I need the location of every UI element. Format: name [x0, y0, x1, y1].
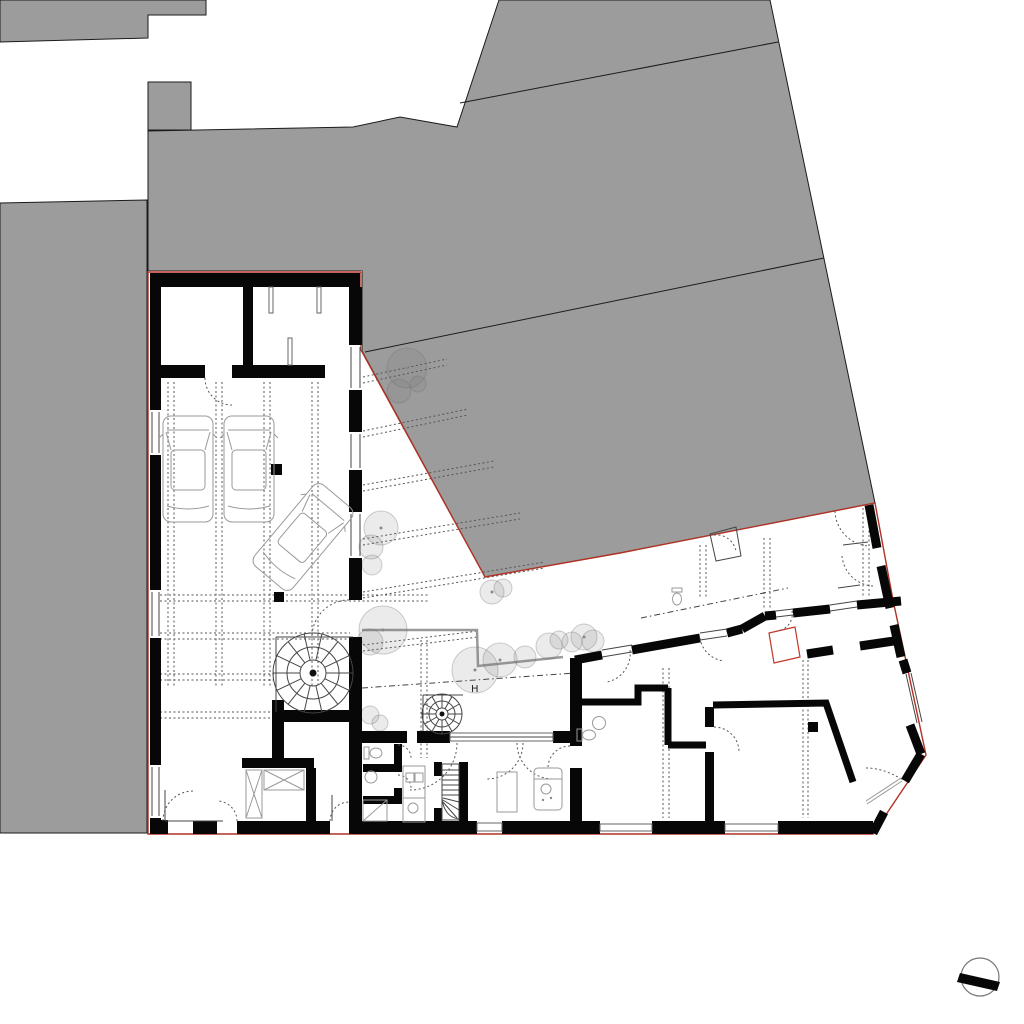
duct-stub: [269, 287, 273, 313]
plant-dot: [550, 797, 552, 799]
wall-segment: [570, 658, 582, 746]
wall-segment: [459, 762, 468, 822]
wall-segment: [903, 660, 907, 673]
wall-segment: [150, 287, 161, 410]
tree-canopy: [514, 646, 536, 668]
tree-canopy: [582, 630, 604, 652]
tree-trunk-dot: [380, 527, 383, 530]
neighbor-block-a: [0, 0, 206, 42]
wall-segment: [243, 287, 253, 365]
wall-segment: [349, 821, 362, 834]
wall-segment: [232, 365, 325, 378]
wall-segment: [237, 821, 330, 834]
wall-segment: [705, 707, 714, 727]
neighbor-block-b: [148, 82, 191, 130]
tree-trunk-dot: [382, 629, 385, 632]
wall-segment: [575, 655, 602, 660]
wall-segment: [857, 601, 901, 605]
wall-segment: [242, 758, 314, 768]
wall-segment: [394, 744, 402, 766]
tree-canopy: [387, 379, 411, 403]
wall-pillar: [271, 464, 282, 475]
wall-segment: [150, 638, 161, 765]
wall-segment: [580, 821, 600, 834]
duct-stub: [288, 338, 292, 365]
wall-segment: [652, 821, 725, 834]
spiral-newel-dot: [310, 670, 317, 677]
wall-segment: [150, 455, 161, 590]
wall-segment: [434, 808, 442, 822]
tree-trunk-dot: [417, 383, 419, 385]
wall-segment: [362, 731, 407, 743]
wall-segment: [150, 273, 360, 287]
wall-segment: [150, 820, 168, 834]
wall-segment: [705, 752, 714, 821]
wall-pillar: [808, 722, 818, 732]
wall-segment: [502, 821, 580, 834]
floor-plan-canvas: H: [0, 0, 1024, 1024]
wall-segment: [778, 821, 873, 834]
hydrant-label: H: [471, 684, 479, 695]
wall-pillar: [274, 592, 284, 602]
wall-segment: [765, 615, 776, 616]
wall-segment: [727, 629, 742, 633]
wall-segment: [349, 558, 362, 600]
neighbor-block-left: [0, 200, 147, 833]
tree-trunk-dot: [474, 669, 477, 672]
duct-stub: [317, 287, 321, 313]
wall-segment: [349, 287, 362, 345]
tree-trunk-dot: [583, 636, 586, 639]
wall-segment: [272, 700, 284, 768]
tree-canopy: [494, 579, 512, 597]
wall-segment: [363, 764, 402, 772]
plant-dot: [542, 799, 544, 801]
wall-segment: [793, 609, 830, 613]
wall-segment: [860, 640, 901, 646]
wall-segment: [553, 731, 570, 743]
wall-segment: [807, 650, 833, 654]
wall-segment: [150, 365, 205, 378]
wall-segment: [306, 768, 316, 822]
wall-segment: [284, 710, 349, 722]
window-frame: [725, 824, 778, 831]
tree-canopy: [362, 555, 382, 575]
tree-trunk-dot: [406, 367, 409, 370]
wall-segment: [193, 821, 217, 834]
wall-segment: [349, 390, 362, 432]
window-frame: [477, 823, 502, 831]
wall-segment: [362, 821, 477, 834]
wall-segment: [349, 637, 362, 821]
wall-segment: [570, 768, 582, 823]
spiral-newel-dot: [440, 712, 445, 717]
wall-segment: [434, 762, 442, 776]
spiral-stair-small: [422, 694, 462, 734]
window-frame: [600, 824, 652, 831]
tree-canopy: [372, 715, 388, 731]
tree-trunk-dot: [491, 591, 494, 594]
wall-segment: [349, 470, 362, 512]
tree-trunk-dot: [499, 659, 502, 662]
wall-segment: [417, 731, 450, 743]
